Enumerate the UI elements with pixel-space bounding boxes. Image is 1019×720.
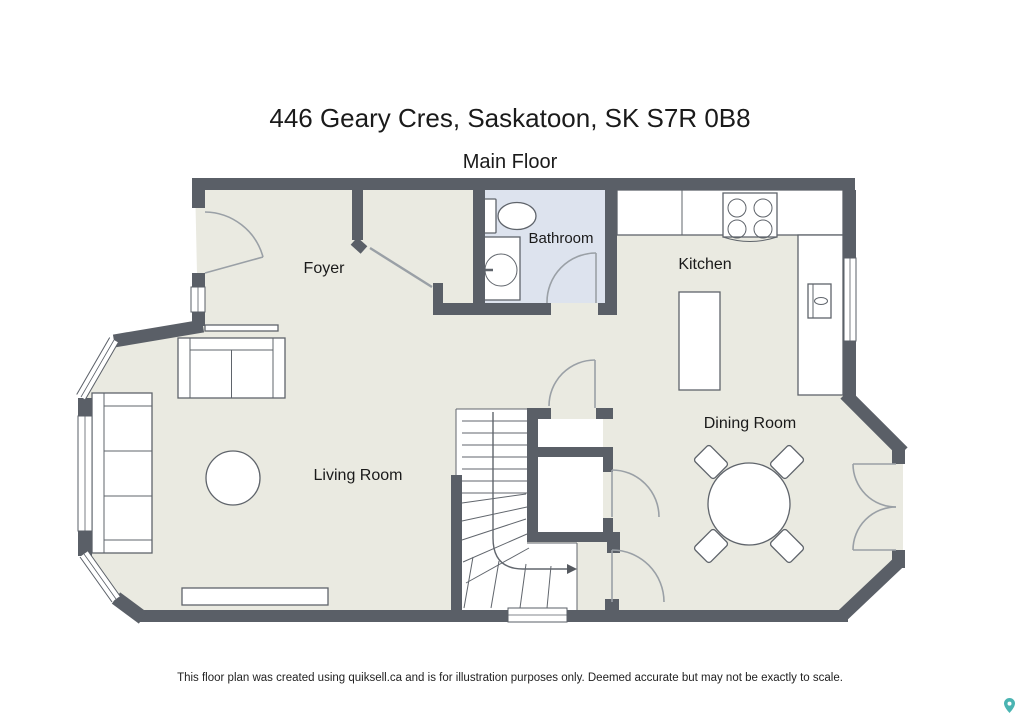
- disclaimer-text: This floor plan was created using quikse…: [177, 672, 843, 684]
- coffee-table: [206, 451, 260, 505]
- kitchen-sink: [808, 284, 831, 318]
- sofa: [92, 393, 152, 553]
- floor-plan-page: 446 Geary Cres, Saskatoon, SK S7R 0B8 Ma…: [0, 0, 1019, 720]
- closet-a-area: [538, 419, 603, 447]
- media-console: [182, 588, 328, 605]
- stove: [723, 193, 777, 242]
- floor-plan-drawing: Foyer Bathroom Kitchen Living Room Dinin…: [77, 178, 905, 622]
- quiksell-watermark-icon: [1004, 698, 1015, 713]
- room-label-bathroom: Bathroom: [528, 230, 593, 247]
- dining-table: [708, 463, 790, 545]
- basement-stair-window: [508, 608, 567, 622]
- room-label-kitchen: Kitchen: [678, 256, 731, 273]
- toilet: [478, 199, 536, 233]
- page-title: 446 Geary Cres, Saskatoon, SK S7R 0B8: [269, 103, 750, 133]
- closet-b-area: [538, 457, 603, 532]
- room-label-living-room: Living Room: [314, 467, 403, 484]
- kitchen-window: [844, 258, 856, 341]
- bay-window-center: [78, 416, 92, 531]
- room-label-foyer: Foyer: [304, 260, 346, 277]
- foyer-window: [191, 287, 205, 312]
- floor-name: Main Floor: [463, 151, 558, 173]
- kitchen-island: [679, 292, 720, 390]
- bathroom-sink-vanity: [480, 237, 520, 300]
- room-label-dining-room: Dining Room: [704, 415, 796, 432]
